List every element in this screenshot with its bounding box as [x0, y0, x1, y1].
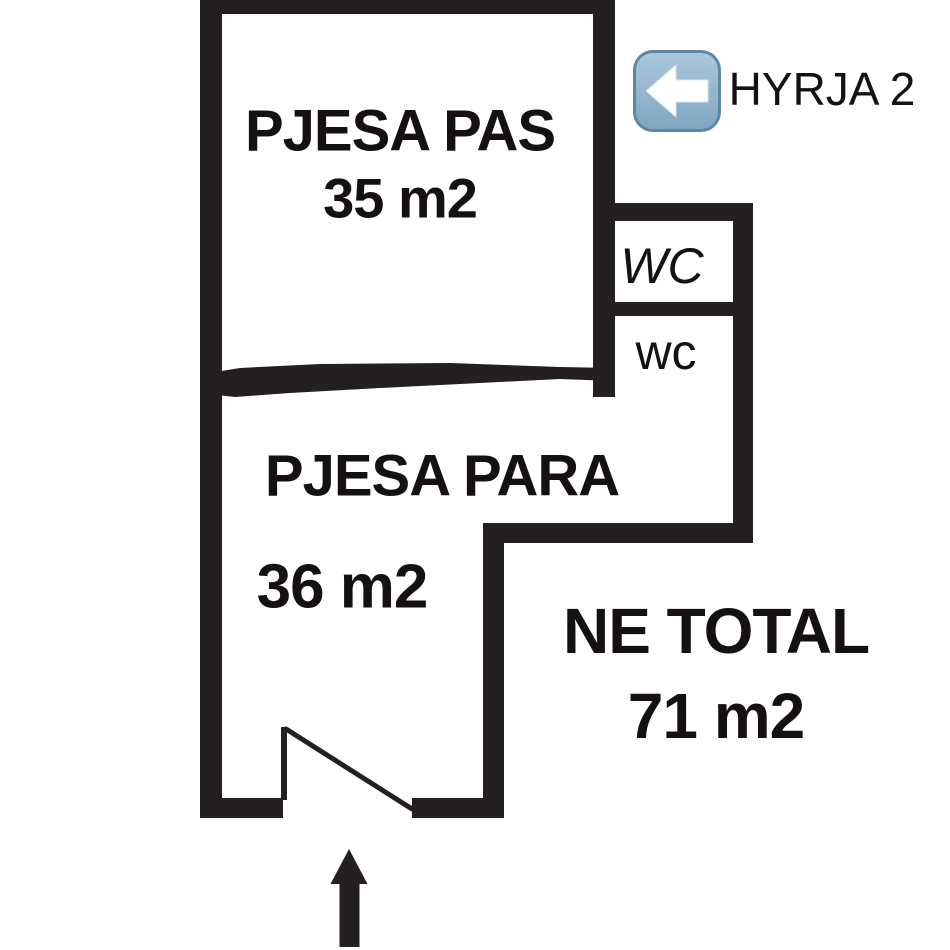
entrance-label: HYRJA 2: [729, 62, 916, 116]
room-front-area: 36 m2: [257, 552, 428, 623]
total-title: NE TOTAL: [563, 594, 869, 668]
floor-plan-canvas: PJESA PAS 35 m2 HYRJA 2 WC wc PJESA PARA…: [0, 0, 950, 950]
wall-room-divider-stroke: [203, 363, 612, 397]
total-area: 71 m2: [628, 679, 804, 753]
room-back-area: 35 m2: [323, 166, 477, 231]
wc-upper-label: WC: [620, 237, 703, 295]
entry-direction-arrow: [331, 849, 368, 947]
room-back-name: PJESA PAS: [245, 98, 555, 165]
left-arrow-emoji-face: [636, 53, 718, 129]
wc-lower-label: wc: [635, 323, 696, 381]
door-swing-leaf: [286, 729, 412, 809]
room-front-name: PJESA PARA: [265, 443, 619, 510]
door-jamb: [281, 727, 287, 800]
left-arrow-emoji: [633, 50, 721, 132]
left-arrow-icon: [636, 53, 718, 129]
